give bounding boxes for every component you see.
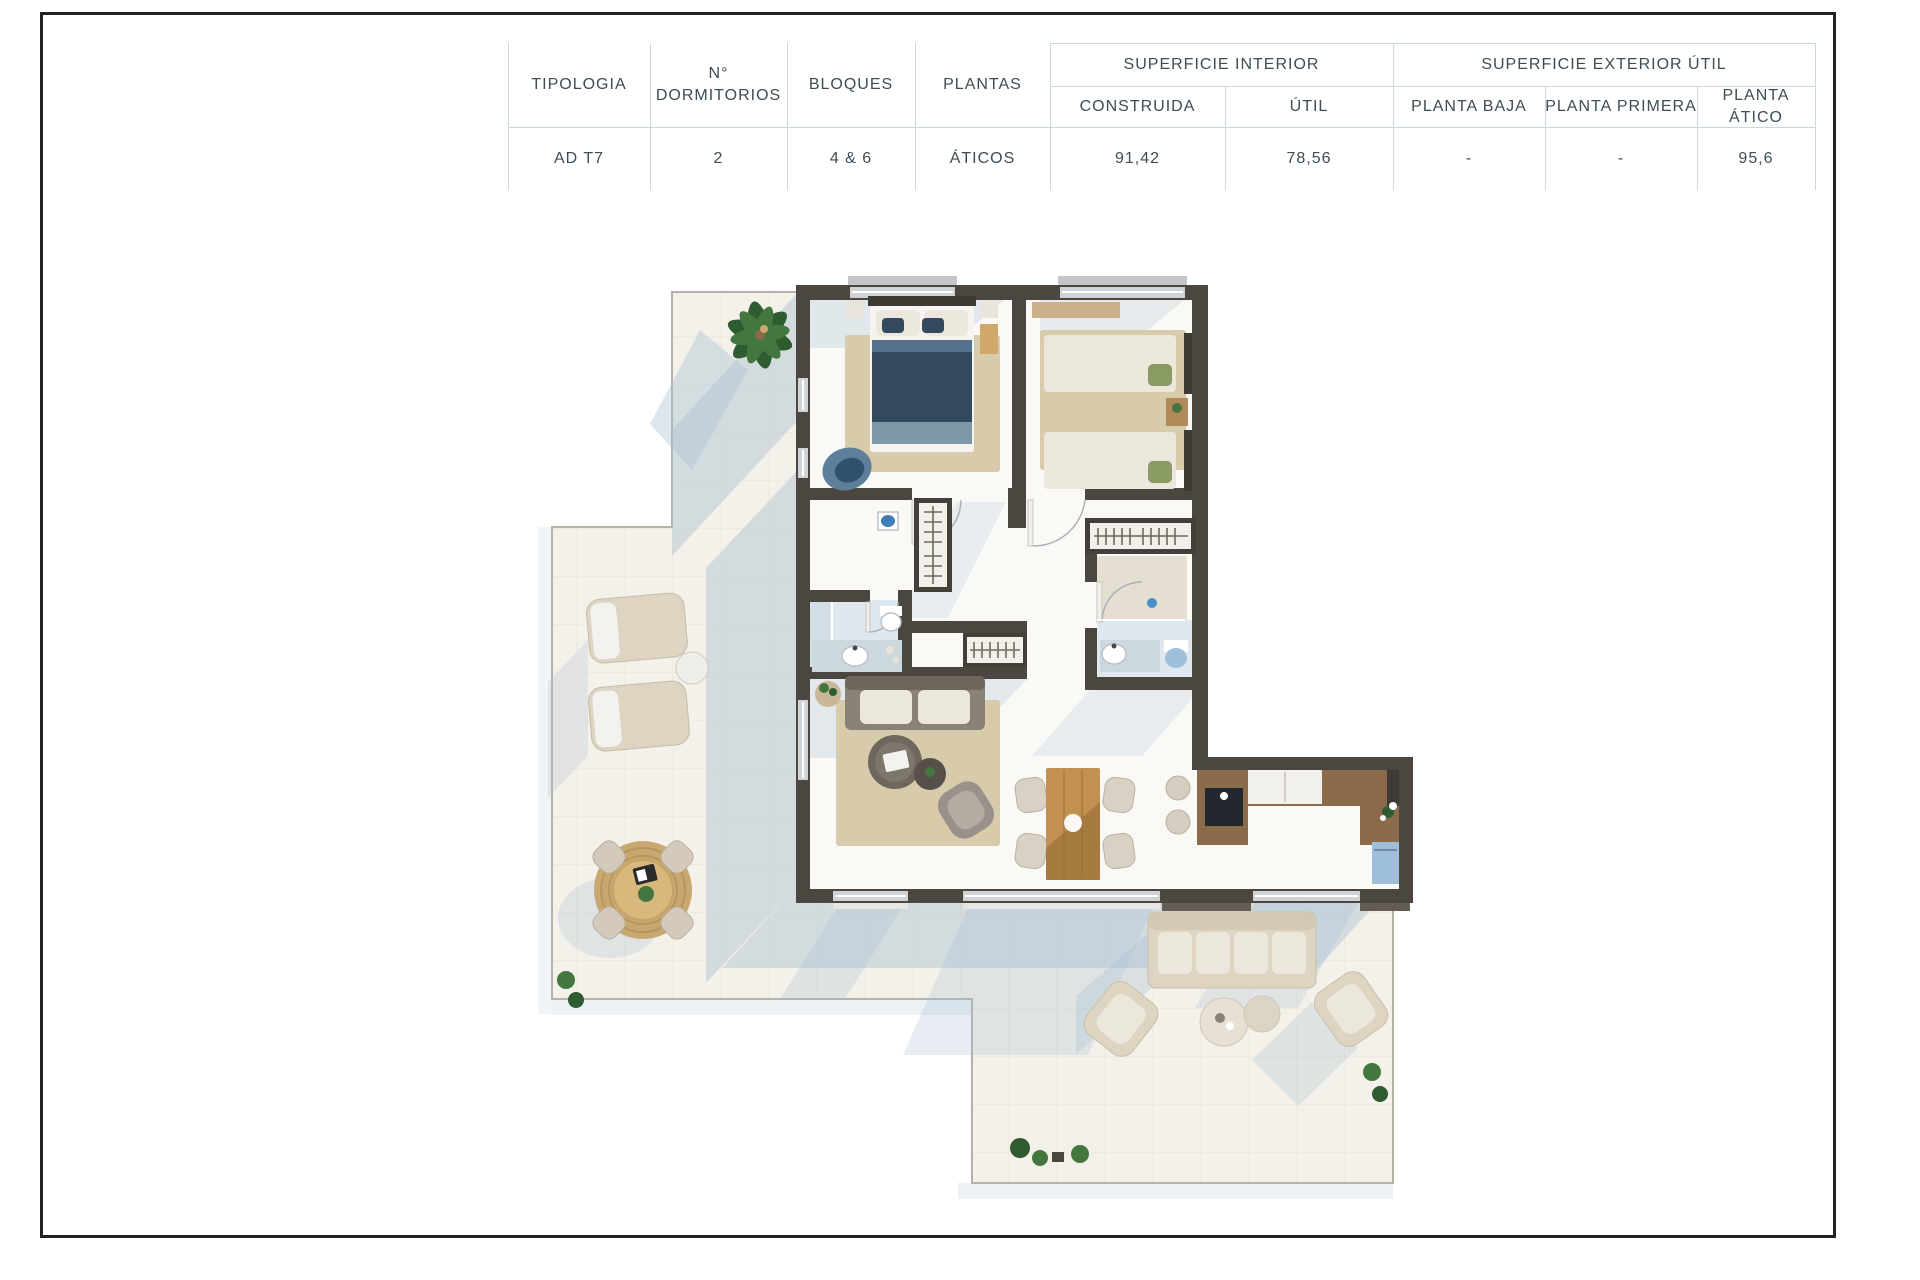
plant-icon [1172,403,1182,413]
nightstand [846,300,864,318]
nightstand [980,300,998,318]
basin-bowl-icon [881,515,895,527]
floor-plan [0,0,1920,1280]
bar-stool [1166,810,1190,834]
wardrobe-hangers [1085,518,1196,554]
bedroom-divider-wall [1012,285,1026,490]
lounger [585,592,688,664]
shower-icon [1147,598,1157,608]
dining-chair [1014,776,1048,814]
indoor-sofa [845,676,985,730]
dining-chair [1102,832,1136,870]
dining-table [1046,768,1100,880]
window-sill [1058,276,1187,285]
toilet-icon [880,606,902,631]
single-bed [1044,333,1192,394]
dining-chair [1014,832,1048,870]
brochure-page: TIPOLOGIA N° DORMITORIOS BLOQUES PLANTAS… [0,0,1920,1280]
dresser [980,324,998,354]
appliance [1372,842,1399,884]
terrace-outer-shadow [552,999,972,1015]
coffee-table [1200,998,1248,1046]
plant-icon [638,886,654,902]
plant-basket-icon [815,681,841,707]
window-ledge [963,903,1160,909]
window-sill [848,276,957,285]
side-table [676,652,708,684]
single-bed [1044,430,1192,491]
toilet-icon [1164,640,1188,668]
bathroom-2-shower-floor [1097,556,1187,620]
threshold [1360,903,1410,911]
outdoor-sofa [1148,912,1316,988]
threshold [1162,903,1251,911]
window-ledge [833,903,908,909]
coffee-table [1244,996,1280,1032]
linen-closet [963,633,1027,667]
dresser [1032,302,1120,318]
double-bed [868,296,976,452]
living-room [815,676,1000,846]
outdoor-dining-set [589,837,697,943]
bar-stool [1166,776,1190,800]
lounger [587,680,690,752]
terrace-outer-shadow [958,1183,1393,1199]
dining-chair [1102,776,1136,814]
faucet-icon [1220,792,1228,800]
